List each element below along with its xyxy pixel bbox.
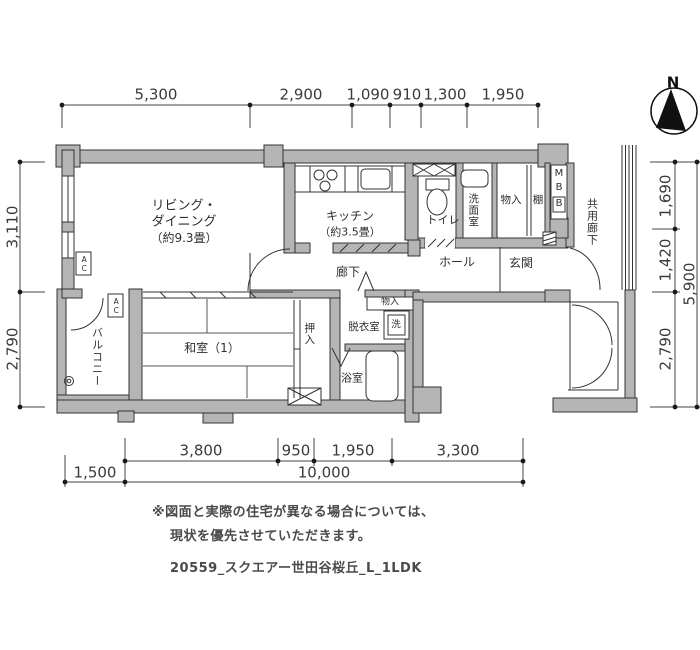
ac-label-balcony: AC: [112, 297, 120, 315]
window-left-1: [62, 176, 74, 222]
dim-top-3: 1,090: [347, 88, 390, 103]
corridor-railing: [622, 145, 636, 290]
room-common-corridor: 共用廊下: [587, 198, 598, 246]
dim-left-2: 2,790: [6, 328, 21, 371]
toilet-door: [425, 238, 455, 248]
living-door-arc: [248, 249, 290, 291]
room-bathroom: 浴室: [341, 373, 363, 384]
cross-hatch-box: [288, 388, 321, 405]
room-washroom: 洗面室: [468, 193, 479, 228]
floor-plan-page: 5,300 2,900 1,090 910 1,300 1,950 3,110 …: [0, 0, 700, 650]
room-storage-upper: 物入: [501, 195, 522, 206]
dim-bottom-total: 10,000: [298, 466, 351, 481]
room-living-line1: リビング・: [151, 200, 216, 213]
room-dressing: 脱衣室: [348, 322, 380, 333]
room-entrance: 玄関: [509, 257, 533, 269]
dim-bottom-3: 1,950: [332, 444, 375, 459]
entrance-step: [543, 232, 556, 245]
room-toilet: トイレ: [427, 215, 460, 226]
dim-top-2: 2,900: [280, 88, 323, 103]
ac-label-living: AC: [80, 255, 88, 273]
room-living-line3: （約9.3畳）: [150, 232, 217, 244]
north-label: N: [667, 76, 680, 91]
toilet-shelf: [413, 164, 455, 176]
note-line1: ※図面と実際の住宅が異なる場合については、: [152, 501, 435, 520]
room-shelf: 棚: [533, 195, 544, 206]
storage-door-symbol: [358, 272, 374, 291]
toilet-icon: [426, 179, 449, 215]
dim-top-4: 910: [393, 88, 422, 103]
room-living-line2: ダイニング: [151, 216, 216, 229]
meter-box-b1: B: [556, 183, 563, 193]
dim-bottom-2: 950: [282, 444, 311, 459]
room-hall: ホール: [439, 256, 475, 268]
dim-right-2: 1,420: [659, 239, 674, 282]
dim-top-6: 1,950: [482, 88, 525, 103]
room-kitchen-line2: （約3.5畳）: [319, 227, 381, 238]
room-japanese: 和室（1）: [184, 342, 240, 354]
washbasin-icon: [461, 170, 488, 187]
room-corridor: 廊下: [336, 266, 360, 278]
dim-right-3: 2,790: [659, 328, 674, 371]
alcove-double-doors: [568, 302, 618, 390]
oshiire-fusuma: [294, 300, 300, 398]
north-compass-icon: [651, 88, 697, 134]
bathtub-icon: [366, 351, 398, 401]
meter-box-m: M: [555, 169, 564, 179]
dim-right-total: 5,900: [683, 263, 698, 306]
room-kitchen-line1: キッチン: [326, 210, 374, 222]
note-line2: 現状を優先させていただきます。: [170, 525, 371, 544]
entrance-door-arc: [570, 248, 600, 290]
dim-top-1: 5,300: [135, 88, 178, 103]
dim-bottom-4: 3,300: [437, 444, 480, 459]
dim-bottom-1: 3,800: [180, 444, 223, 459]
sink-icon: [361, 169, 390, 189]
room-storage-small: 物入: [381, 299, 399, 308]
dim-right-1: 1,690: [659, 175, 674, 218]
meter-box-b2: B: [556, 199, 563, 209]
dim-left-1: 3,110: [6, 206, 21, 249]
washer-label: 洗: [391, 320, 401, 330]
room-closet: 押入: [304, 323, 315, 346]
note-line3: 20559_スクエアー世田谷桜丘_L_1LDK: [170, 557, 422, 576]
dim-top-5: 1,300: [424, 88, 467, 103]
balcony-door-arc: [71, 298, 103, 330]
dim-bottom-offset: 1,500: [74, 466, 117, 481]
room-balcony: バルコニー: [92, 327, 103, 387]
window-left-2: [62, 232, 74, 258]
